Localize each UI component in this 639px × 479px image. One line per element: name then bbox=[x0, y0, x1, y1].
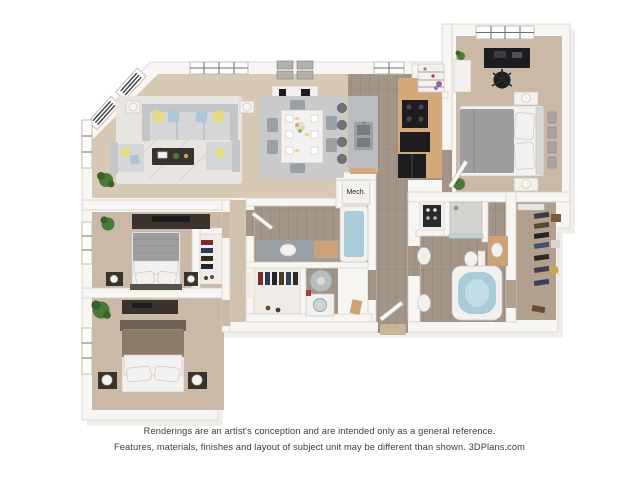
tub-water-highlight bbox=[465, 279, 489, 307]
sofa-arm-left bbox=[142, 104, 150, 141]
armchair-right-back bbox=[232, 140, 240, 172]
shower bbox=[449, 202, 483, 239]
bathtub-water bbox=[344, 211, 364, 257]
closet-box-brown bbox=[551, 214, 561, 222]
bed3-lamp-right-icon bbox=[192, 375, 202, 385]
sofa-pillow-blue-2 bbox=[195, 110, 207, 122]
bed1-duvet bbox=[460, 109, 514, 173]
wall-bedroom1-bottom bbox=[408, 192, 570, 202]
bed2-duvet bbox=[133, 233, 179, 261]
wall-bath-closets bbox=[246, 262, 372, 268]
lower-cabinet bbox=[400, 132, 430, 152]
bed1-pillow-1 bbox=[514, 112, 535, 139]
coffee-table-bowl bbox=[184, 154, 188, 158]
disclaimer: Renderings are an artist's conception an… bbox=[0, 423, 639, 455]
showerhead-icon bbox=[454, 206, 458, 210]
bedroom2-door-opening bbox=[222, 212, 230, 238]
armchair-left-back bbox=[110, 142, 118, 174]
nightstand-lamp-bottom-icon bbox=[522, 180, 531, 189]
coffee-table-book bbox=[158, 152, 167, 158]
stove bbox=[402, 100, 428, 128]
bed1-pillow-2 bbox=[514, 142, 535, 169]
dining-chair-right-1 bbox=[326, 116, 337, 130]
floor-plan-svg: Mech. bbox=[0, 0, 639, 479]
wall-closet-laundry bbox=[300, 268, 306, 318]
bed3-duvet bbox=[122, 330, 184, 357]
wall-shoe-closet-right bbox=[444, 202, 450, 236]
sofa-pillow-yellow bbox=[152, 110, 164, 122]
bedroom3-dresser-decor bbox=[132, 303, 152, 308]
doormat bbox=[380, 324, 406, 335]
nightstand-lamp-top-icon bbox=[522, 94, 531, 103]
closet-hat-icon bbox=[549, 265, 558, 274]
dining-chair-right-2 bbox=[326, 138, 337, 152]
master-vanity-sink-icon bbox=[492, 243, 503, 257]
sofa-pillow-blue bbox=[168, 110, 180, 122]
bed2-pillow-2 bbox=[158, 271, 177, 285]
closet-box-white bbox=[551, 240, 560, 248]
bedroom3-window bbox=[82, 328, 92, 374]
faucet-icon bbox=[362, 121, 366, 125]
closet-shoes-icon bbox=[266, 306, 271, 311]
bed2-headboard bbox=[130, 284, 182, 290]
bedroom2-window bbox=[82, 222, 92, 264]
bed1-headboard bbox=[536, 108, 544, 174]
washer-door-icon bbox=[314, 299, 327, 312]
bed2-lamp-right-icon bbox=[188, 276, 195, 283]
armchair-left-pillow-yellow bbox=[120, 146, 130, 156]
dining-chair-bottom bbox=[290, 162, 305, 173]
living-room bbox=[97, 96, 254, 187]
bathroom-sink-icon bbox=[280, 244, 296, 256]
coffee-table-plant-icon bbox=[173, 153, 179, 159]
bed2-lamp-left-icon bbox=[110, 275, 117, 282]
entry-hall-floor bbox=[376, 180, 408, 322]
hallway-floor bbox=[230, 200, 246, 322]
dining-chair-top bbox=[290, 100, 305, 111]
shoe-closet bbox=[420, 202, 444, 230]
master-toilet bbox=[465, 251, 486, 267]
bed3-lamp-left-icon bbox=[102, 375, 112, 385]
dining-chair-left-1 bbox=[267, 118, 278, 132]
walkin-door-opening bbox=[506, 280, 516, 308]
kitchen-island-base bbox=[350, 168, 376, 174]
desk bbox=[484, 48, 530, 68]
vanity-towels bbox=[314, 241, 338, 258]
armchair-left-pillow-blue bbox=[129, 154, 140, 165]
floorplan-rendering: Mech. bbox=[0, 0, 639, 479]
bedroom2-tv bbox=[152, 216, 190, 222]
water-heater-cap bbox=[317, 277, 325, 285]
closet-shoes-icon-2 bbox=[276, 308, 281, 313]
living-left-window bbox=[82, 120, 92, 168]
dining-chair-left-2 bbox=[267, 140, 278, 154]
mech-label: Mech. bbox=[346, 189, 365, 196]
bedroom1-dresser bbox=[454, 60, 471, 92]
wall-living-bedroom2 bbox=[82, 200, 230, 210]
bed3-pillow-1 bbox=[126, 366, 151, 382]
wall-shoe-closet bbox=[416, 230, 448, 236]
pedestal-sink-icon bbox=[418, 248, 431, 265]
disclaimer-line-1: Renderings are an artist's conception an… bbox=[0, 423, 639, 439]
table-lamp-right-icon bbox=[243, 103, 251, 111]
masterbath-door-opening bbox=[408, 246, 420, 276]
sink-basin-2 bbox=[357, 138, 370, 147]
wall-bath-top bbox=[246, 198, 344, 206]
toilet-icon bbox=[418, 295, 431, 312]
bedroom3-door-opening bbox=[222, 300, 230, 326]
laptop bbox=[512, 52, 522, 58]
hall-closet-door-opening bbox=[246, 272, 254, 298]
monitor bbox=[494, 51, 506, 58]
bed2-pillow-1 bbox=[136, 271, 155, 285]
bed3-headboard bbox=[120, 320, 186, 331]
pantry-closet bbox=[418, 64, 444, 92]
closet-top-shelf bbox=[518, 204, 544, 210]
disclaimer-line-2: Features, materials, finishes and layout… bbox=[0, 439, 639, 455]
laundry-door-opening bbox=[368, 270, 376, 300]
detergent-bottle bbox=[306, 290, 311, 296]
sofa-arm-right bbox=[230, 104, 238, 141]
sink-basin-1 bbox=[357, 125, 370, 135]
bed3-pillow-2 bbox=[154, 366, 179, 382]
table-lamp-left-icon bbox=[129, 103, 137, 111]
walkin-closet-floor bbox=[516, 202, 556, 320]
sofa-pillow-yellow-2 bbox=[212, 110, 224, 122]
